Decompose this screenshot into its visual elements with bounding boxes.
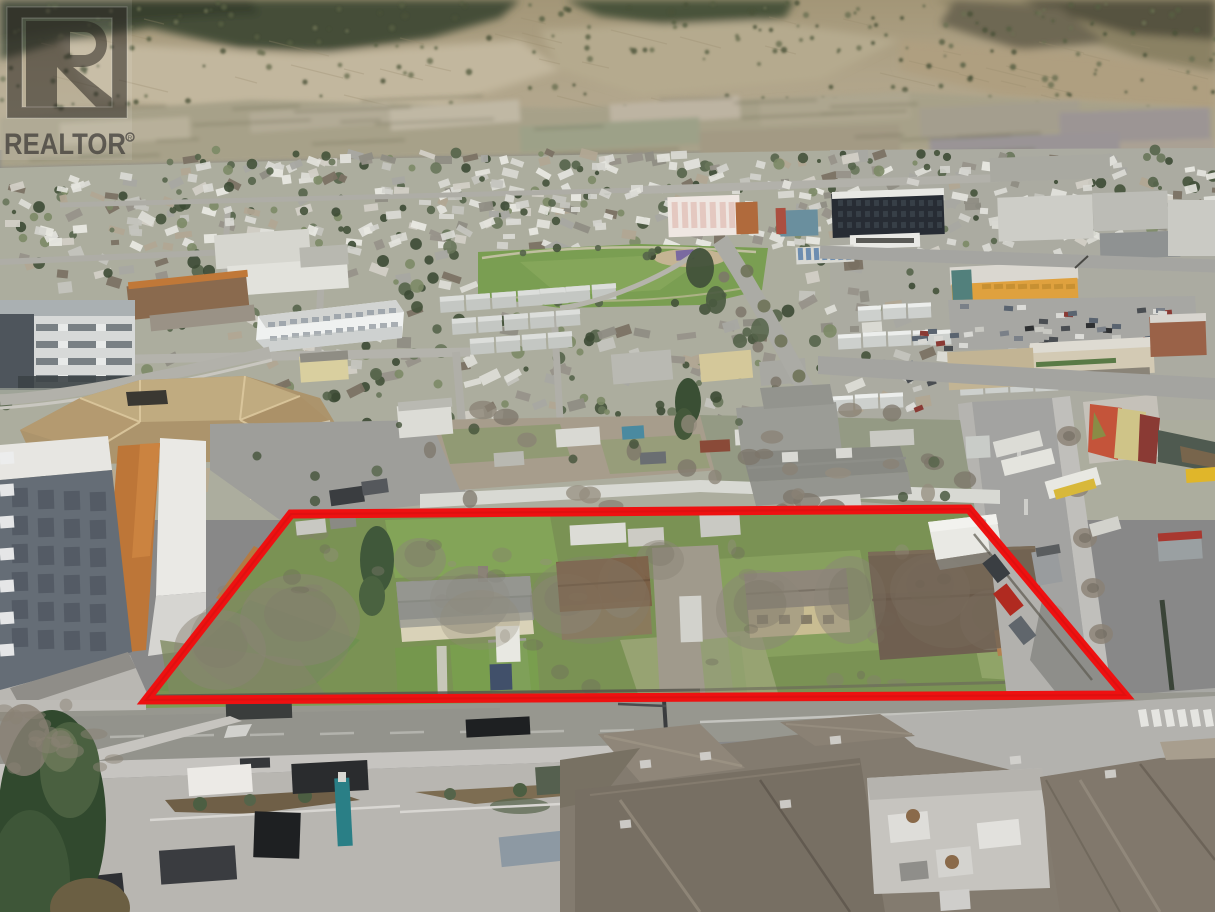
svg-text:R: R [128,135,133,142]
svg-text:REALTOR: REALTOR [4,128,126,161]
